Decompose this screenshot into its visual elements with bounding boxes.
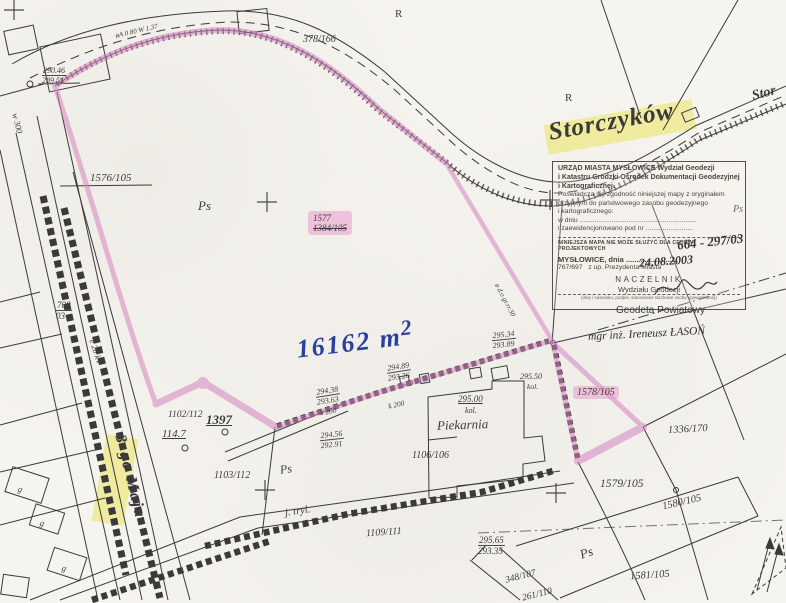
- elevation-top: 290.46: [42, 66, 66, 76]
- parcel-label-261-110: 261/110: [521, 586, 553, 603]
- kol-label: kol.: [465, 406, 477, 415]
- elevation-bottom: 293.35: [478, 546, 505, 556]
- stamp-office-line2: i Katastru Grodzki Ośrodek Dokumentacji …: [558, 174, 740, 183]
- stamp-cert-line2: przyjętym do państwowego zasobu geodezyj…: [558, 200, 740, 208]
- parcel-label-1578-105: 1578/105: [577, 387, 615, 398]
- land-use-j-tryl: j. tryl.: [284, 504, 311, 518]
- parcel-label-1581-105: 1581/105: [630, 569, 670, 583]
- parcel-chip-1578-105: 1578/105: [573, 386, 619, 399]
- elevation-bottom: 293.89: [492, 339, 517, 351]
- elevation-label: 295.34 293.89: [491, 329, 517, 351]
- surveyor-title: Geodeta Powiatowy: [616, 305, 705, 316]
- land-use-r: R: [395, 8, 402, 20]
- street-name-storczykow-continuation: Stor: [750, 83, 777, 104]
- utility-label-water: w 300: [10, 112, 25, 134]
- land-use-ps: Ps: [279, 461, 293, 478]
- utility-label-gas: øA 0 80 W 1.37: [115, 22, 159, 40]
- building-label-g: g: [61, 563, 68, 574]
- stamp-cert-line1: Poświadcza się zgodność niniejszej mapy …: [558, 191, 740, 199]
- cadastral-map-scan: Storczyków Stor 3-go Maja 16162 m2 1576/…: [0, 0, 786, 603]
- land-use-ps: Ps: [578, 543, 595, 562]
- subject-parcel-chip: 1577 1384/105: [308, 211, 352, 235]
- parcel-label-1576-105: 1576/105: [90, 172, 132, 184]
- building-label-g: g: [17, 484, 24, 495]
- benchmark-label: 290.46 289.51: [42, 66, 66, 85]
- elevation-label: 295.65 293.35: [478, 535, 505, 557]
- parcel-label-1397: 1397: [206, 412, 232, 428]
- stamp-ref-number: 767/697: [558, 264, 583, 271]
- stamp-cert-line3: i kartograficznego:: [558, 208, 740, 216]
- utility-label-k200: k 200: [387, 398, 405, 410]
- street-name-storczykow: Storczyków: [547, 97, 677, 147]
- elevation-label-295-00: 295.00: [458, 394, 483, 404]
- area-exponent: 2: [399, 315, 415, 340]
- area-value: 16162 m: [295, 322, 403, 364]
- parcel-label-708-03: 708 03: [56, 300, 72, 322]
- elevation-bottom: 289.51: [42, 76, 66, 85]
- parcel-708-den: 03: [56, 311, 72, 321]
- elevation-bottom: 292.91: [320, 439, 345, 451]
- utility-label-pipe: ø d.o gr.rr.30: [493, 282, 517, 318]
- parcel-label-1579-105: 1579/105: [600, 478, 643, 490]
- parcel-label-1102-112: 1102/112: [168, 410, 202, 420]
- elevation-top: 295.65: [478, 535, 505, 546]
- parcel-label-1577: 1577: [313, 213, 347, 223]
- stamp-office-line3: i Kartograficznej.: [558, 183, 740, 192]
- parcel-label-1384-105-struck: 1384/105: [313, 223, 347, 233]
- stamp-date-blank: w dniu .................................…: [558, 217, 740, 225]
- elevation-label: 294.38 293.63: [315, 384, 342, 407]
- parcel-label-348-107: 348/107: [504, 568, 537, 585]
- utility-label-powerline: e 20 kV: [87, 338, 104, 365]
- elevation-label: 294.56 292.91: [319, 429, 345, 451]
- utility-label-k200: k 200: [319, 406, 337, 418]
- parcel-708-num: 708: [56, 300, 72, 311]
- stamp-office-line1: URZĄD MIASTA MYSŁOWICE Wydział Geodezji: [558, 165, 740, 174]
- parcel-label-1103-112: 1103/112: [214, 470, 250, 481]
- stamp-registry-line: i zaewidencjonowano pod nr .............…: [558, 225, 740, 233]
- kol-label: kol.: [527, 382, 538, 391]
- parcel-area-annotation: 16162 m2: [294, 315, 416, 365]
- official-stamp: URZĄD MIASTA MYSŁOWICE Wydział Geodezji …: [552, 161, 746, 310]
- building-label-piekarnia: Piekarnia: [437, 416, 489, 434]
- parcel-label-1580-105: 1580/105: [661, 493, 702, 513]
- land-use-r: R: [565, 92, 572, 104]
- land-use-ps: Ps: [198, 198, 211, 214]
- signature-scribble-icon: [651, 274, 721, 300]
- building-label-g: g: [39, 518, 46, 529]
- parcel-label-378-166: 378/166: [303, 34, 336, 45]
- parcel-label-1109-111: 1109/111: [366, 526, 402, 539]
- street-name-3go-maja: 3-go Maja: [111, 433, 149, 521]
- elevation-label: 294.89 293.26: [386, 360, 413, 383]
- parcel-label-1336-170: 1336/170: [668, 423, 708, 436]
- elevation-label-295-50: 295.50: [520, 372, 542, 381]
- parcel-label-1106-106: 1106/106: [412, 450, 449, 461]
- point-label-114-7: 114.7: [162, 428, 186, 440]
